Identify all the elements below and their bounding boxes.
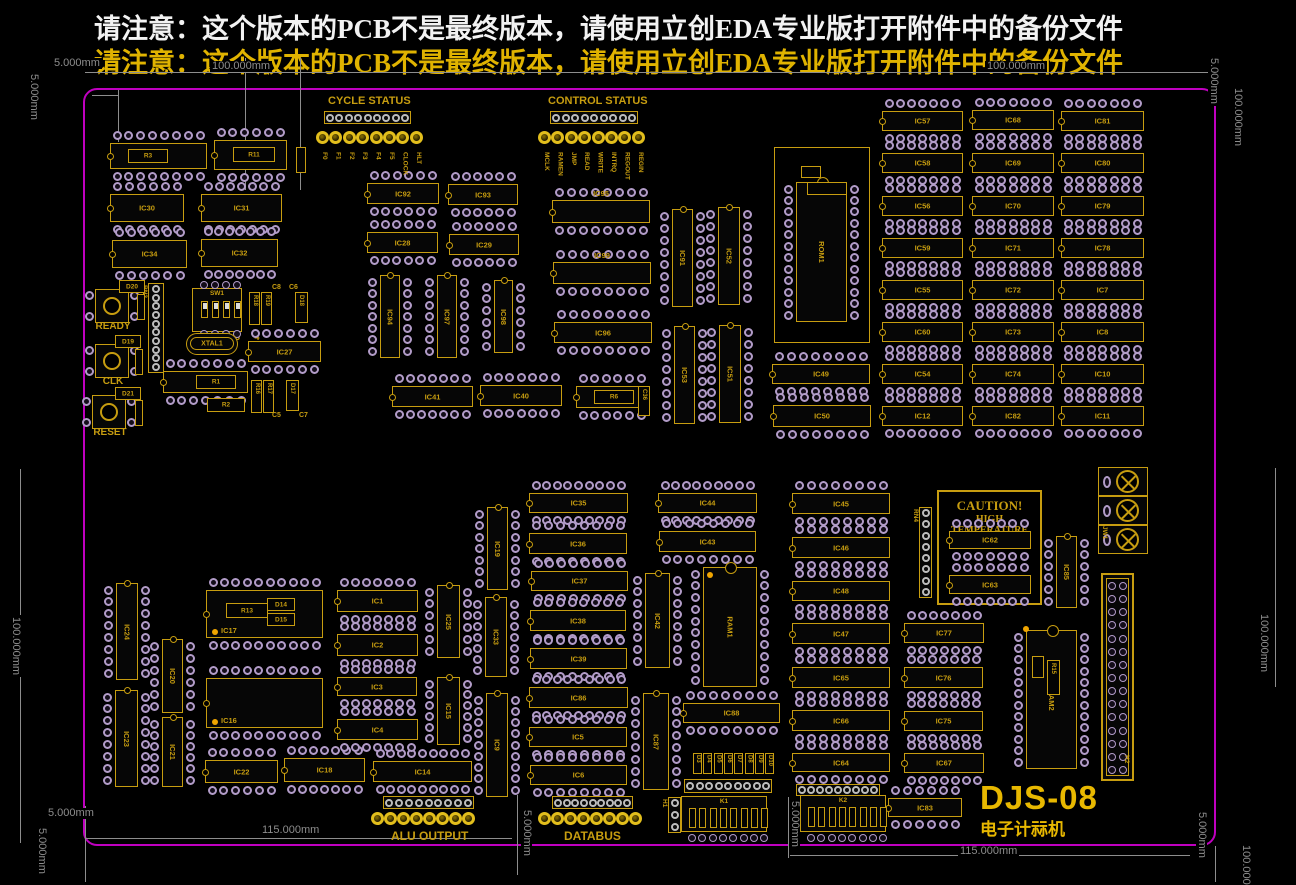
chip-notch xyxy=(1047,625,1059,637)
pad xyxy=(208,786,217,795)
pad xyxy=(606,675,615,684)
pad xyxy=(1108,727,1116,735)
ic-notch xyxy=(727,322,734,329)
pad xyxy=(640,287,649,296)
pad xyxy=(686,726,695,735)
pad xyxy=(1133,268,1142,277)
pad xyxy=(867,525,876,534)
pad xyxy=(425,623,434,632)
pad xyxy=(604,521,613,530)
header-hole xyxy=(870,786,878,794)
ic-ic60: IC60 xyxy=(882,322,963,342)
pad xyxy=(660,296,669,305)
pin1-dot xyxy=(212,719,218,725)
pad xyxy=(952,268,961,277)
pad xyxy=(706,294,715,303)
pad xyxy=(370,256,379,265)
part-d18: D18 xyxy=(295,292,308,323)
ic-ic81: IC81 xyxy=(1061,111,1144,131)
pad xyxy=(395,374,404,383)
idc-header-h2 xyxy=(1101,573,1134,781)
ic-label: IC31 xyxy=(202,204,281,213)
ic-label: IC18 xyxy=(285,766,364,775)
ic-label: IC62 xyxy=(950,536,1030,545)
pad xyxy=(533,753,542,762)
pad xyxy=(1098,394,1107,403)
pad xyxy=(186,666,195,675)
pad xyxy=(860,430,869,439)
pad xyxy=(510,611,519,620)
pad xyxy=(103,752,112,761)
pad xyxy=(807,525,816,534)
pad xyxy=(373,622,382,631)
button-label: CLK xyxy=(89,376,137,386)
pad xyxy=(1014,667,1023,676)
pad xyxy=(1020,563,1029,572)
chip-rom1: ROM1 xyxy=(796,182,847,322)
pad xyxy=(662,555,671,564)
pad xyxy=(494,409,503,418)
led-signal-label: HLT xyxy=(412,152,422,194)
dimension-label: 100.000mm xyxy=(1240,843,1251,885)
pad xyxy=(407,743,416,752)
silk-text-c8: C8 xyxy=(272,284,281,291)
pad xyxy=(831,775,840,784)
header-hole xyxy=(382,114,390,122)
ic-label: IC28 xyxy=(368,238,437,247)
pad xyxy=(141,633,150,642)
part-unlabeled xyxy=(1032,656,1044,678)
led-signal-label: RAMEN xyxy=(553,152,563,194)
header-hole xyxy=(434,799,442,807)
pad xyxy=(819,481,828,490)
pad xyxy=(631,767,640,776)
pad xyxy=(103,740,112,749)
pad xyxy=(633,576,642,585)
pad xyxy=(951,820,960,829)
connector-hole xyxy=(922,577,930,585)
pad xyxy=(298,746,307,755)
network-resistor xyxy=(741,808,748,828)
ic-label: IC55 xyxy=(883,286,962,295)
control-status-led-7 xyxy=(632,131,645,144)
network-resistor xyxy=(720,808,727,828)
pad xyxy=(1064,141,1073,150)
ic-ic30: IC30 xyxy=(110,194,184,222)
connector-label: H1 xyxy=(661,799,668,823)
pad xyxy=(452,258,461,267)
ic-ic67: IC67 xyxy=(904,753,984,773)
pad xyxy=(1087,141,1096,150)
ic-ic49: IC49 xyxy=(772,364,870,384)
pad xyxy=(952,563,961,572)
pad xyxy=(784,185,793,194)
pad xyxy=(907,268,916,277)
pad xyxy=(743,234,752,243)
pad xyxy=(744,328,753,337)
pad xyxy=(629,310,638,319)
ic-label: IC59 xyxy=(883,244,962,253)
ic-ic70: IC70 xyxy=(972,196,1054,216)
pad xyxy=(733,691,742,700)
header-hole xyxy=(724,782,732,790)
pad xyxy=(869,834,877,842)
pad xyxy=(850,196,859,205)
pad xyxy=(593,559,602,568)
connector-hole xyxy=(152,311,160,319)
pad xyxy=(1075,394,1084,403)
header-hole xyxy=(552,114,560,122)
pad xyxy=(351,622,360,631)
pad xyxy=(855,569,864,578)
pad xyxy=(662,341,671,350)
pad xyxy=(104,669,113,678)
pad xyxy=(660,224,669,233)
ic-label: IC78 xyxy=(1062,244,1143,253)
pad xyxy=(918,141,927,150)
pad xyxy=(276,128,285,137)
pad xyxy=(850,288,859,297)
pad xyxy=(907,226,916,235)
pad xyxy=(950,699,959,708)
chip-label: ROM1 xyxy=(817,241,826,263)
pad xyxy=(125,182,134,191)
diode-label: D8 xyxy=(747,755,753,763)
pad xyxy=(629,346,638,355)
pad xyxy=(1064,429,1073,438)
pad xyxy=(186,742,195,751)
ic-label: IC20 xyxy=(168,668,177,684)
dimension-label: 115.000mm xyxy=(260,825,321,836)
pad xyxy=(760,593,769,602)
pad xyxy=(220,666,229,675)
diode-label: D9 xyxy=(757,755,763,763)
sw1-knob xyxy=(225,303,229,309)
pad xyxy=(784,311,793,320)
led-signal-label: F3 xyxy=(358,152,368,194)
pad xyxy=(867,775,876,784)
ic-label: IC25 xyxy=(444,614,453,630)
silk-text-c6: C6 xyxy=(289,284,298,291)
diode-label: D6 xyxy=(726,755,732,763)
header-hole xyxy=(807,786,815,794)
pad xyxy=(585,675,594,684)
pad xyxy=(843,698,852,707)
sw1-knob xyxy=(203,303,207,309)
pad xyxy=(672,696,681,705)
alu-output-led-5 xyxy=(436,812,449,825)
network-resistor xyxy=(699,808,706,828)
pad xyxy=(581,559,590,568)
pad xyxy=(1110,268,1119,277)
pad xyxy=(843,611,852,620)
header-hole xyxy=(606,799,614,807)
ic-ic18: IC18 xyxy=(284,758,365,782)
pad xyxy=(287,785,296,794)
pad xyxy=(417,374,426,383)
pad xyxy=(1108,740,1116,748)
pad xyxy=(556,715,565,724)
pad xyxy=(508,222,517,231)
ic-ic83: IC83 xyxy=(888,798,962,817)
ic-label: IC10 xyxy=(1062,370,1143,379)
control-status-led-5 xyxy=(605,131,618,144)
control-status-led-2 xyxy=(565,131,578,144)
pad xyxy=(604,287,613,296)
header-hole xyxy=(464,799,472,807)
pad xyxy=(850,311,859,320)
pad xyxy=(950,655,959,664)
pad xyxy=(975,394,984,403)
pad xyxy=(940,646,949,655)
pad xyxy=(975,98,984,107)
button-cap xyxy=(103,352,121,370)
pad xyxy=(986,552,995,561)
pad xyxy=(1075,141,1084,150)
ic-ic66: IC66 xyxy=(792,710,890,731)
pad xyxy=(997,563,1006,572)
pad xyxy=(1133,352,1142,361)
header-hole xyxy=(405,799,413,807)
pad xyxy=(287,746,296,755)
pad xyxy=(516,318,525,327)
pad xyxy=(574,675,583,684)
ic-label: IC67 xyxy=(905,759,983,768)
button-label: READY xyxy=(89,321,137,331)
pad xyxy=(1108,674,1116,682)
pad xyxy=(104,633,113,642)
pad xyxy=(215,182,224,191)
header-hole xyxy=(354,114,362,122)
pad xyxy=(962,611,971,620)
pad xyxy=(553,675,562,684)
ic-ic45: IC45 xyxy=(792,493,890,514)
pad xyxy=(463,712,472,721)
pad xyxy=(186,720,195,729)
pad xyxy=(775,352,784,361)
pad xyxy=(879,655,888,664)
pad xyxy=(604,753,613,762)
ic-notch xyxy=(493,594,500,601)
pad xyxy=(698,401,707,410)
pad xyxy=(1064,268,1073,277)
pad xyxy=(706,258,715,267)
pad xyxy=(1043,226,1052,235)
pad xyxy=(463,680,472,689)
part-label: R19 xyxy=(264,295,270,306)
pad xyxy=(473,172,482,181)
ic-ic9: IC9 xyxy=(486,693,508,797)
button-cap xyxy=(103,297,121,315)
pad xyxy=(298,785,307,794)
pad xyxy=(744,376,753,385)
pad xyxy=(511,752,520,761)
diode-d4: D4 xyxy=(703,753,712,774)
button-clk xyxy=(95,344,129,378)
pad xyxy=(1014,644,1023,653)
pad xyxy=(604,715,613,724)
pad xyxy=(1098,226,1107,235)
led-signal-label: F0 xyxy=(318,152,328,194)
pad xyxy=(264,173,273,182)
ic-ic86: IC86 xyxy=(529,687,628,708)
pad xyxy=(1020,184,1029,193)
sw1-knob xyxy=(236,303,240,309)
header-hole xyxy=(609,114,617,122)
pad xyxy=(963,597,972,606)
pad xyxy=(211,281,219,289)
pad xyxy=(141,776,150,785)
pad xyxy=(1009,184,1018,193)
pad xyxy=(1087,268,1096,277)
pad xyxy=(474,786,483,795)
pad xyxy=(961,655,970,664)
pad xyxy=(760,570,769,579)
pad xyxy=(855,655,864,664)
ic-label: IC35 xyxy=(530,499,627,508)
ic-ic74: IC74 xyxy=(972,364,1054,384)
pad xyxy=(1080,712,1089,721)
pad xyxy=(661,481,670,490)
pad xyxy=(672,755,681,764)
ic-label: IC66 xyxy=(793,716,889,725)
part-label: R1 xyxy=(197,379,235,386)
part-r13: R13 xyxy=(226,603,268,618)
pad xyxy=(1014,735,1023,744)
pad xyxy=(425,324,434,333)
ic-ic50: IC50 xyxy=(773,405,871,427)
pad xyxy=(368,278,377,287)
silk-text-databus: DATABUS xyxy=(564,829,621,843)
ic-ic48: IC48 xyxy=(792,581,890,601)
pad xyxy=(628,287,637,296)
ic-label: IC68 xyxy=(973,116,1053,125)
ic-label: IC36 xyxy=(530,539,626,548)
pad xyxy=(85,291,94,300)
pad xyxy=(300,731,309,740)
pad xyxy=(1009,429,1018,438)
pad xyxy=(896,394,905,403)
pad xyxy=(1043,268,1052,277)
pad xyxy=(1075,429,1084,438)
pad xyxy=(141,752,150,761)
pad xyxy=(569,310,578,319)
pad xyxy=(795,775,804,784)
ic-ic39: IC39 xyxy=(530,648,627,669)
pad xyxy=(962,741,971,750)
pad xyxy=(831,741,840,750)
ic-label: IC46 xyxy=(793,543,889,552)
pad xyxy=(517,373,526,382)
ic-notch xyxy=(444,272,451,279)
connector-hole xyxy=(922,554,930,562)
ic-ic1: IC1 xyxy=(337,590,418,612)
ic-ic32: IC32 xyxy=(201,239,278,267)
pad xyxy=(918,99,927,108)
pad xyxy=(757,726,766,735)
ic-notch xyxy=(124,580,131,587)
header-hole xyxy=(454,799,462,807)
button-reset xyxy=(92,395,126,429)
pad xyxy=(776,393,785,402)
pad xyxy=(907,352,916,361)
pad xyxy=(907,429,916,438)
pad xyxy=(757,691,766,700)
pad xyxy=(555,226,564,235)
pad xyxy=(743,270,752,279)
pad xyxy=(237,359,246,368)
pad xyxy=(186,642,195,651)
pad xyxy=(800,430,809,439)
pad xyxy=(860,393,869,402)
pad xyxy=(617,675,626,684)
pad xyxy=(544,521,553,530)
pad xyxy=(1087,226,1096,235)
ic-ic75: IC75 xyxy=(904,711,983,731)
diode-d5: D5 xyxy=(714,753,723,774)
part-label: D21 xyxy=(116,390,140,397)
pad xyxy=(384,665,393,674)
ic-ic76: IC76 xyxy=(904,667,983,688)
pad xyxy=(637,374,646,383)
pad xyxy=(1098,429,1107,438)
ic-ic96: IC96 xyxy=(554,322,652,343)
part-unlabeled xyxy=(135,400,143,426)
pad xyxy=(141,764,150,773)
header-hole xyxy=(571,114,579,122)
ic-ic33: IC33 xyxy=(485,597,507,677)
pad xyxy=(1110,310,1119,319)
part-unlabeled xyxy=(801,166,821,178)
pad xyxy=(744,352,753,361)
silk-text-alu_output: ALU OUTPUT xyxy=(391,829,468,843)
pad xyxy=(733,519,742,528)
pad xyxy=(1121,99,1130,108)
pad xyxy=(397,785,406,794)
pad xyxy=(616,521,625,530)
pad xyxy=(1009,352,1018,361)
pad xyxy=(951,741,960,750)
pad xyxy=(451,208,460,217)
pad xyxy=(127,228,136,237)
pad xyxy=(855,525,864,534)
pad xyxy=(580,521,589,530)
pad xyxy=(605,310,614,319)
pad xyxy=(351,707,360,716)
ic-ic54: IC54 xyxy=(882,364,963,384)
pad xyxy=(784,299,793,308)
header-hole xyxy=(843,786,851,794)
ic-ic94: IC94 xyxy=(380,275,400,358)
part-r3: R3 xyxy=(128,149,168,163)
pad xyxy=(256,227,265,236)
pad xyxy=(186,731,195,740)
pad xyxy=(848,430,857,439)
ic-label: IC4 xyxy=(338,725,417,734)
pad xyxy=(859,834,867,842)
pad xyxy=(795,569,804,578)
pad xyxy=(463,588,472,597)
ic-notch xyxy=(655,570,662,577)
part-d15: D15 xyxy=(267,613,295,626)
pad xyxy=(568,598,577,607)
ic-label: IC79 xyxy=(1062,202,1143,211)
ic-notch xyxy=(726,204,733,211)
pad xyxy=(220,731,229,740)
pad xyxy=(243,666,252,675)
ic-ic38: IC38 xyxy=(530,610,626,631)
ic-ic19: IC19 xyxy=(487,507,508,590)
